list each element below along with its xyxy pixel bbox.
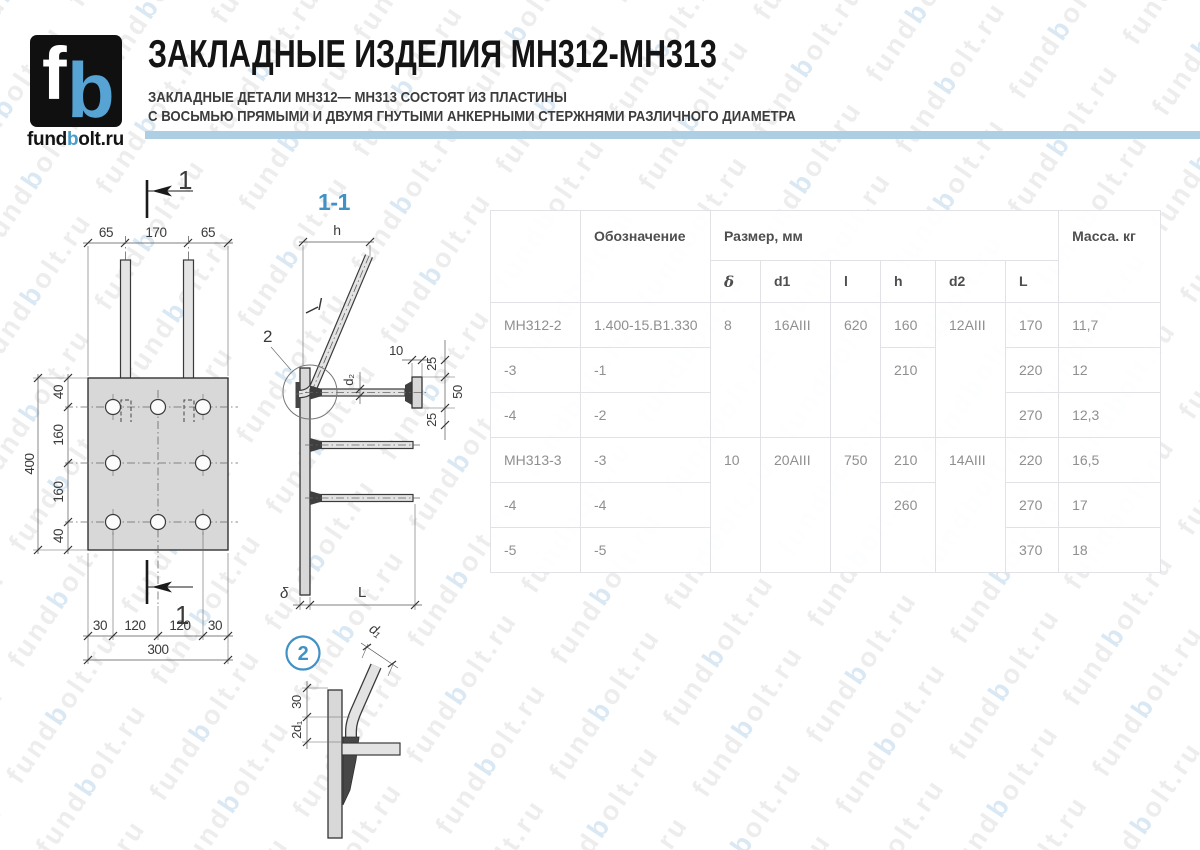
cell-d1: 16AIII bbox=[761, 303, 831, 438]
svg-text:120: 120 bbox=[124, 618, 145, 633]
subtitle-line-1: ЗАКЛАДНЫЕ ДЕТАЛИ МН312— МН313 СОСТОЯТ ИЗ… bbox=[148, 88, 796, 107]
table-corner-cell bbox=[491, 211, 581, 303]
cell-L: 270 bbox=[1006, 393, 1059, 438]
detail-ref-callout: 2 bbox=[263, 327, 291, 370]
svg-text:25: 25 bbox=[424, 357, 439, 371]
col-header-h: h bbox=[881, 261, 936, 303]
svg-text:170: 170 bbox=[145, 225, 166, 240]
plan-dim-left: 40 160 160 40 400 bbox=[25, 374, 88, 554]
cell-designation: -4 bbox=[581, 483, 711, 528]
cell-h: 160 bbox=[881, 303, 936, 348]
section-marker-top-label: 1 bbox=[178, 165, 192, 195]
plan-view-drawing: 1 65 170 65 bbox=[25, 160, 240, 675]
cell-mass: 18 bbox=[1059, 528, 1161, 573]
section-plate bbox=[300, 368, 310, 595]
cell-designation: -2 bbox=[581, 393, 711, 438]
detail-ref-badge: 2 bbox=[287, 637, 320, 670]
cell-mass: 16,5 bbox=[1059, 438, 1161, 483]
svg-text:2: 2 bbox=[298, 643, 309, 665]
cell-name: -3 bbox=[491, 348, 581, 393]
cell-d2: 12AIII bbox=[936, 303, 1006, 438]
col-header-designation: Обозначение bbox=[581, 211, 711, 303]
col-header-l: l bbox=[831, 261, 881, 303]
svg-text:300: 300 bbox=[147, 642, 168, 657]
svg-text:30: 30 bbox=[289, 695, 304, 709]
col-header-L: L bbox=[1006, 261, 1059, 303]
logo-letter-f: f bbox=[42, 31, 67, 116]
cell-name: МН313-3 bbox=[491, 438, 581, 483]
cell-d1: 20AIII bbox=[761, 438, 831, 573]
cell-L: 370 bbox=[1006, 528, 1059, 573]
section-cut-marker-top: 1 bbox=[147, 165, 193, 218]
svg-text:30: 30 bbox=[208, 618, 222, 633]
svg-text:160: 160 bbox=[51, 424, 66, 445]
detail-bent-rod bbox=[351, 666, 376, 741]
cell-designation: -5 bbox=[581, 528, 711, 573]
cell-delta: 10 bbox=[711, 438, 761, 573]
table-row: МН312-2 1.400-15.В1.330 8 16AIII 620 160… bbox=[491, 303, 1161, 348]
table-row: МН313-3 -3 10 20AIII 750 210 14AIII 220 … bbox=[491, 438, 1161, 483]
detail-plate bbox=[328, 690, 342, 838]
section-1-1-drawing: 1-1 h l bbox=[250, 182, 495, 630]
detail-2-drawing: 2 d₁ bbox=[255, 615, 430, 850]
cell-mass: 17 bbox=[1059, 483, 1161, 528]
cell-name: МН312-2 bbox=[491, 303, 581, 348]
cell-mass: 12,3 bbox=[1059, 393, 1161, 438]
spec-table: Обозначение Размер, мм Масса. кг δ d1 l … bbox=[490, 210, 1161, 573]
section-dim-d2: d₂ bbox=[341, 372, 364, 404]
svg-text:h: h bbox=[333, 222, 340, 238]
cell-designation: -3 bbox=[581, 438, 711, 483]
svg-text:2: 2 bbox=[263, 327, 272, 346]
subtitle-line-2: С ВОСЬМЬЮ ПРЯМЫМИ И ДВУМЯ ГНУТЫМИ АНКЕРН… bbox=[148, 107, 796, 126]
page-title: ЗАКЛАДНЫЕ ИЗДЕЛИЯ МН312-МН313 bbox=[148, 33, 717, 77]
catalog-sheet: fundbolt.rufundbolt.rufundbolt.rufundbol… bbox=[0, 0, 1200, 850]
col-header-d2: d2 bbox=[936, 261, 1006, 303]
page-subtitle: ЗАКЛАДНЫЕ ДЕТАЛИ МН312— МН313 СОСТОЯТ ИЗ… bbox=[148, 88, 796, 126]
section-top-anchor bbox=[305, 377, 426, 408]
svg-text:d₁: d₁ bbox=[367, 620, 386, 640]
cell-mass: 11,7 bbox=[1059, 303, 1161, 348]
accent-divider-bar bbox=[145, 131, 1200, 139]
section-dim-head-heights: 25 50 25 bbox=[423, 340, 465, 440]
cell-L: 170 bbox=[1006, 303, 1059, 348]
site-name-pre: fund bbox=[27, 129, 67, 150]
detail-straight-rod bbox=[342, 743, 400, 755]
svg-text:25: 25 bbox=[424, 413, 439, 427]
site-name-accent: b bbox=[67, 129, 78, 150]
col-header-d1: d1 bbox=[761, 261, 831, 303]
site-name: fundbolt.ru bbox=[27, 129, 124, 151]
col-header-size-group: Размер, мм bbox=[711, 211, 1059, 261]
svg-text:120: 120 bbox=[169, 618, 190, 633]
svg-text:65: 65 bbox=[99, 225, 113, 240]
cell-name: -4 bbox=[491, 393, 581, 438]
svg-text:2d₁: 2d₁ bbox=[289, 720, 304, 739]
col-header-mass: Масса. кг bbox=[1059, 211, 1161, 303]
cell-h: 210 bbox=[881, 348, 936, 438]
svg-text:30: 30 bbox=[93, 618, 107, 633]
content-layer: f b fundbolt.ru ЗАКЛАДНЫЕ ИЗДЕЛИЯ МН312-… bbox=[0, 0, 1200, 850]
svg-text:d₂: d₂ bbox=[341, 374, 356, 386]
svg-text:40: 40 bbox=[51, 529, 66, 543]
cell-L: 270 bbox=[1006, 483, 1059, 528]
rod-length-label: l bbox=[318, 295, 323, 314]
plan-dim-top: 65 170 65 bbox=[83, 225, 233, 376]
cell-l: 620 bbox=[831, 303, 881, 438]
cell-name: -5 bbox=[491, 528, 581, 573]
svg-text:160: 160 bbox=[51, 481, 66, 502]
logo-letter-b: b bbox=[67, 45, 115, 136]
table-header-row: Обозначение Размер, мм Масса. кг bbox=[491, 211, 1161, 261]
svg-text:δ: δ bbox=[280, 585, 289, 602]
section-straight-anchors bbox=[305, 438, 420, 505]
cell-L: 220 bbox=[1006, 438, 1059, 483]
svg-text:L: L bbox=[358, 584, 366, 601]
site-name-post: olt.ru bbox=[78, 129, 124, 150]
cell-l: 750 bbox=[831, 438, 881, 573]
cell-h: 260 bbox=[881, 483, 936, 573]
svg-text:10: 10 bbox=[389, 343, 403, 358]
brand-logo: f b bbox=[30, 35, 122, 127]
cell-mass: 12 bbox=[1059, 348, 1161, 393]
section-title: 1-1 bbox=[318, 189, 351, 215]
svg-text:50: 50 bbox=[450, 385, 465, 399]
svg-text:65: 65 bbox=[201, 225, 215, 240]
col-header-delta: δ bbox=[711, 261, 761, 303]
cell-designation: -1 bbox=[581, 348, 711, 393]
cell-designation: 1.400-15.В1.330 bbox=[581, 303, 711, 348]
cell-name: -4 bbox=[491, 483, 581, 528]
svg-text:400: 400 bbox=[25, 453, 37, 474]
cell-h: 210 bbox=[881, 438, 936, 483]
cell-delta: 8 bbox=[711, 303, 761, 438]
svg-text:40: 40 bbox=[51, 385, 66, 399]
section-dim-h: h bbox=[299, 222, 374, 366]
cell-L: 220 bbox=[1006, 348, 1059, 393]
cell-d2: 14AIII bbox=[936, 438, 1006, 573]
